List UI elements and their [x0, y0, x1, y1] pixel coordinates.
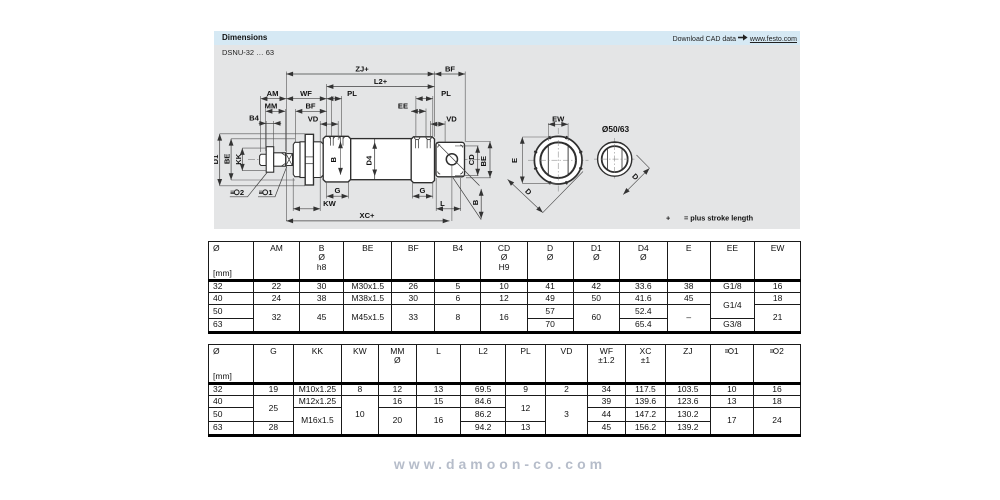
svg-text:= plus stroke length: = plus stroke length — [684, 214, 753, 223]
svg-text:BE: BE — [223, 154, 232, 165]
svg-text:PL: PL — [441, 89, 451, 98]
svg-text:AM: AM — [267, 89, 279, 98]
svg-text:BE: BE — [479, 156, 488, 167]
svg-text:WF: WF — [300, 89, 312, 98]
svg-text:2: 2 — [240, 188, 244, 197]
svg-text:G: G — [335, 186, 341, 195]
svg-text:B: B — [329, 157, 338, 163]
svg-text:VD: VD — [308, 114, 319, 123]
svg-text:VD: VD — [446, 114, 457, 123]
svg-text:D4: D4 — [364, 155, 373, 165]
svg-text:B: B — [471, 199, 480, 205]
svg-text:E: E — [510, 158, 519, 163]
svg-text:KK: KK — [234, 153, 243, 164]
svg-text:EE: EE — [398, 102, 408, 111]
svg-text:EW: EW — [552, 114, 565, 123]
svg-text:G: G — [420, 186, 426, 195]
svg-text:1: 1 — [268, 188, 273, 197]
svg-text:ZJ+: ZJ+ — [355, 65, 369, 74]
svg-text:+: + — [666, 214, 670, 223]
svg-text:CD: CD — [467, 154, 476, 165]
svg-text:KW: KW — [323, 199, 336, 208]
svg-text:BF: BF — [305, 102, 315, 111]
svg-text:D: D — [630, 172, 641, 183]
svg-text:L: L — [440, 199, 445, 208]
svg-text:B4: B4 — [249, 113, 259, 122]
svg-text:Ø50/63: Ø50/63 — [602, 124, 630, 134]
svg-text:PL: PL — [347, 89, 357, 98]
svg-text:L2+: L2+ — [374, 77, 388, 86]
svg-text:XC+: XC+ — [360, 211, 376, 220]
svg-text:MM: MM — [265, 102, 278, 111]
svg-text:D1: D1 — [214, 154, 220, 164]
svg-text:BF: BF — [445, 65, 455, 74]
